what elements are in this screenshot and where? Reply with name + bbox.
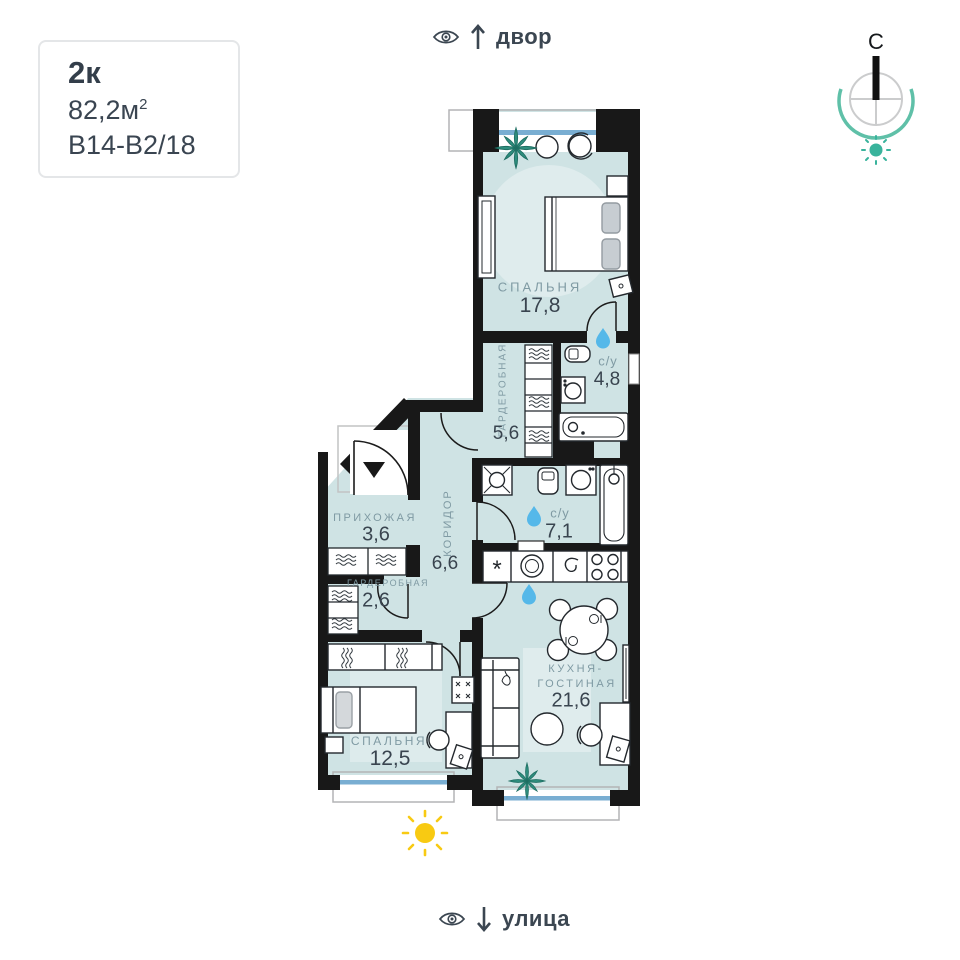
room-area-bedroom-second: 12,5 bbox=[370, 747, 411, 771]
desk-chair bbox=[429, 730, 449, 750]
fridge-symbol: * bbox=[492, 556, 501, 584]
arrow-up-icon bbox=[470, 24, 486, 50]
nightstand bbox=[607, 176, 628, 196]
room-label-kitchen-line2: ГОСТИНАЯ bbox=[537, 678, 616, 690]
double-bed bbox=[545, 197, 628, 271]
entry-door bbox=[350, 430, 408, 495]
room-area-bedroom-main: 17,8 bbox=[520, 294, 561, 318]
view-direction-top-label: двор bbox=[496, 24, 552, 50]
view-direction-bottom: улица bbox=[438, 906, 570, 932]
nightstand bbox=[325, 737, 343, 753]
wall-unit bbox=[452, 677, 474, 703]
room-label-wardrobe-hall: ГАРДЕРОБНАЯ bbox=[347, 578, 429, 588]
compass bbox=[839, 56, 913, 164]
bedside-mat bbox=[609, 275, 633, 297]
room-label-bedroom-second: СПАЛЬНЯ bbox=[351, 734, 427, 748]
room-label-bathroom-main: с/у bbox=[598, 354, 618, 369]
room-label-kitchen-line1: КУХНЯ- bbox=[548, 663, 603, 675]
chair-icon bbox=[569, 135, 591, 157]
compass-needle bbox=[873, 56, 880, 100]
desk-chair bbox=[580, 724, 602, 746]
room-area-wardrobe-hall: 2,6 bbox=[362, 590, 390, 613]
room-area-bathroom-main: 4,8 bbox=[594, 369, 620, 391]
eye-icon bbox=[432, 28, 460, 46]
room-area-wardrobe-main: 5,6 bbox=[493, 423, 519, 445]
single-bed bbox=[321, 687, 416, 733]
apartment-type: 2к bbox=[68, 54, 238, 93]
compass-sun-icon bbox=[862, 136, 890, 164]
view-direction-bottom-label: улица bbox=[502, 906, 570, 932]
apartment-area: 82,2м2 bbox=[68, 93, 238, 128]
wardrobe-cabinet bbox=[478, 196, 495, 278]
floorplan-page: 2к 82,2м2 В14-В2/18 двор улица С СПАЛЬНЯ… bbox=[0, 0, 960, 960]
wardrobe-cabinet bbox=[328, 644, 442, 670]
room-label-hallway: ПРИХОЖАЯ bbox=[333, 512, 417, 524]
kitchen-counter bbox=[483, 551, 628, 582]
sun-icon bbox=[403, 811, 447, 855]
room-area-kitchen: 21,6 bbox=[552, 690, 591, 713]
view-direction-top: двор bbox=[432, 24, 552, 50]
eye-icon bbox=[438, 910, 466, 928]
arrow-down-icon bbox=[476, 906, 492, 932]
bathtub-icon bbox=[600, 465, 628, 545]
room-label-bedroom-main: СПАЛЬНЯ bbox=[498, 280, 583, 295]
wall-niche bbox=[629, 354, 639, 384]
room-label-bathroom-guest: с/у bbox=[550, 506, 570, 521]
room-label-corridor: КОРИДОР bbox=[442, 489, 454, 556]
room-area-hallway: 3,6 bbox=[362, 524, 390, 547]
plan-info-card: 2к 82,2м2 В14-В2/18 bbox=[38, 40, 240, 178]
sofa bbox=[481, 658, 519, 758]
washing-machine-icon bbox=[482, 465, 512, 495]
stool-icon bbox=[536, 136, 558, 158]
tv-icon bbox=[623, 645, 629, 702]
bathtub-icon bbox=[559, 413, 628, 441]
apartment-plan-code: В14-В2/18 bbox=[68, 128, 238, 163]
room-area-bathroom-guest: 7,1 bbox=[545, 521, 573, 544]
coffee-table bbox=[531, 713, 563, 745]
room-area-corridor: 6,6 bbox=[432, 553, 458, 575]
compass-north-label: С bbox=[868, 29, 884, 55]
